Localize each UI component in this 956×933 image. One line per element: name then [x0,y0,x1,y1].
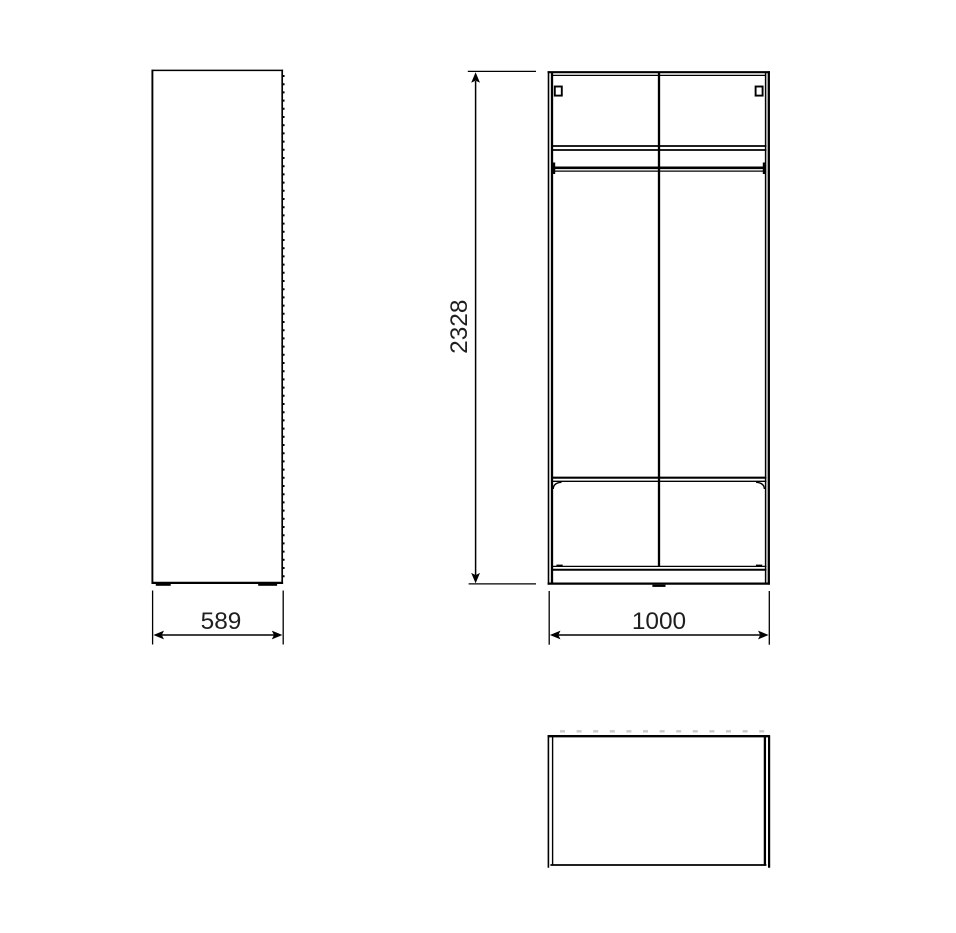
svg-text:2328: 2328 [446,300,473,354]
svg-text:589: 589 [201,608,242,635]
svg-text:1000: 1000 [632,608,686,635]
